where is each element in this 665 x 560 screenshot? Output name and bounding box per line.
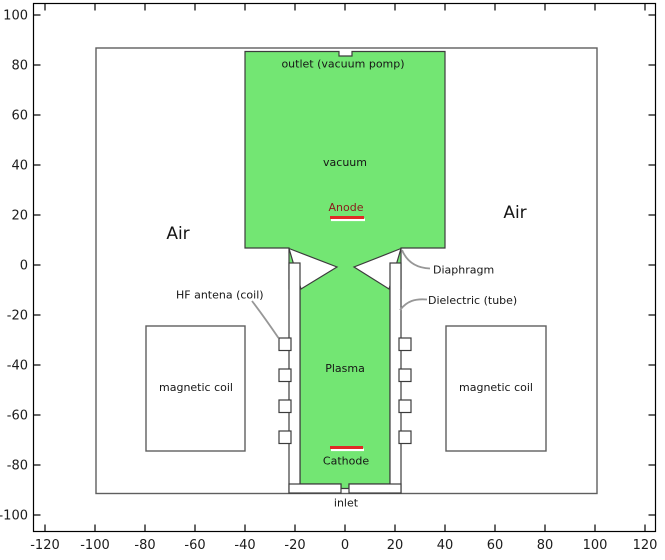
axis-tick-label: -120: [30, 538, 60, 553]
cathode-label: Cathode: [323, 455, 369, 468]
axis-tick-label: -80: [134, 538, 155, 553]
axis-tick-label: -80: [7, 459, 28, 474]
axis-tick-label: 100: [3, 9, 28, 24]
magnetic-coil-right-label: magnetic coil: [459, 381, 533, 394]
hf-antenna-square: [279, 400, 291, 413]
bottom-plate-right: [349, 484, 401, 493]
axis-tick-label: -20: [284, 538, 305, 553]
axis-tick-label: 0: [20, 259, 28, 274]
axis-tick-label: 80: [11, 59, 28, 74]
diaphragm-label: Diaphragm: [433, 264, 494, 277]
hf-antenna-square: [399, 338, 411, 351]
vacuum-label: vacuum: [323, 156, 367, 169]
hf-antenna-label: HF antena (coil): [176, 289, 264, 302]
plot-canvas: outlet (vacuum pomp) vacuum Anode Air Ai…: [0, 0, 665, 560]
hf-antenna-square: [399, 369, 411, 382]
axis-tick-label: 60: [487, 538, 504, 553]
axis-tick-label: -20: [7, 309, 28, 324]
air-left-label: Air: [166, 224, 189, 244]
axis-tick-label: -60: [7, 409, 28, 424]
plasma-label: Plasma: [325, 362, 365, 375]
axis-tick-label: 100: [583, 538, 608, 553]
hf-antenna-square: [279, 369, 291, 382]
hf-antenna-square: [279, 338, 291, 351]
hf-antenna-square: [279, 431, 291, 444]
dielectric-label: Dielectric (tube): [428, 294, 517, 307]
anode-label: Anode: [329, 201, 364, 214]
anode-electrode-line: [330, 216, 365, 221]
cathode-electrode-line: [330, 446, 364, 451]
axis-tick-label: -100: [80, 538, 110, 553]
inlet-label: inlet: [334, 497, 359, 510]
axis-tick-label: 40: [11, 159, 28, 174]
geometry-plot: outlet (vacuum pomp) vacuum Anode Air Ai…: [0, 0, 665, 560]
hf-antenna-square: [399, 431, 411, 444]
axis-tick-label: 0: [341, 538, 349, 553]
axis-tick-label: 80: [537, 538, 554, 553]
axis-tick-label: 20: [11, 209, 28, 224]
axis-tick-label: 120: [633, 538, 658, 553]
axis-tick-label: 40: [437, 538, 454, 553]
axis-tick-label: -40: [234, 538, 255, 553]
axis-tick-label: 60: [11, 109, 28, 124]
axis-tick-label: -100: [0, 509, 28, 524]
axis-tick-label: -40: [7, 359, 28, 374]
axis-tick-label: 20: [387, 538, 404, 553]
bottom-plate-left: [289, 484, 341, 493]
hf-antenna-square: [399, 400, 411, 413]
outlet-label: outlet (vacuum pomp): [281, 58, 404, 71]
magnetic-coil-left-label: magnetic coil: [159, 381, 233, 394]
air-right-label: Air: [503, 203, 526, 223]
axis-tick-label: -60: [184, 538, 205, 553]
